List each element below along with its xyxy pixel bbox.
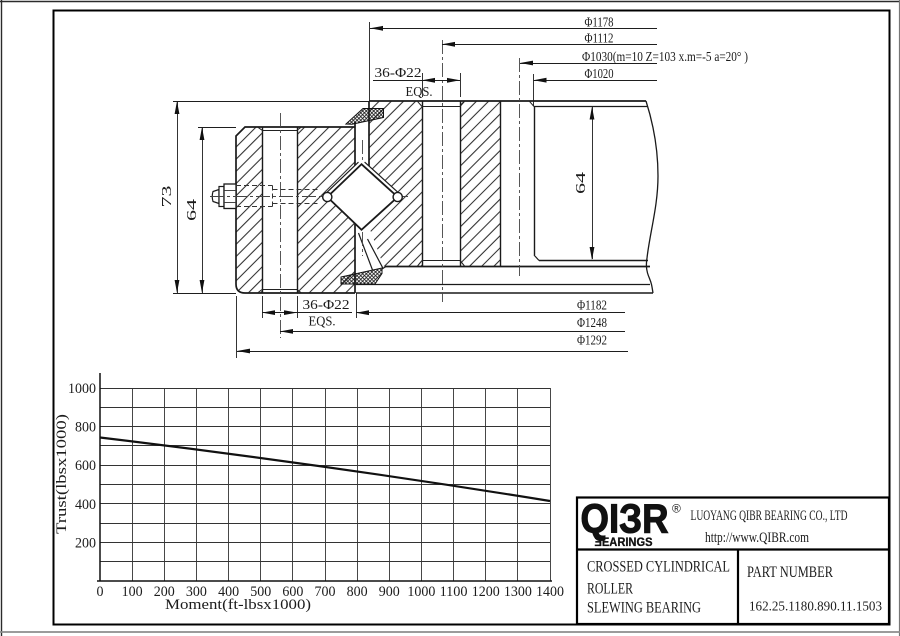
svg-text:Φ1112: Φ1112 xyxy=(585,32,614,47)
svg-text:64: 64 xyxy=(574,172,589,194)
svg-text:1000: 1000 xyxy=(407,584,435,600)
svg-text:800: 800 xyxy=(75,420,96,436)
svg-text:Moment(ft-lbsx1000): Moment(ft-lbsx1000) xyxy=(165,597,311,613)
svg-text:Φ1182: Φ1182 xyxy=(577,299,607,314)
svg-text:Φ1030(m=10 Z=103 x.m=-5 a=20°: Φ1030(m=10 Z=103 x.m=-5 a=20° ) xyxy=(582,50,748,65)
svg-text:36-Φ22: 36-Φ22 xyxy=(303,298,350,313)
svg-text:Trust(lbsx1000): Trust(lbsx1000) xyxy=(54,414,70,534)
svg-text:900: 900 xyxy=(379,584,400,600)
svg-text:EQS.: EQS. xyxy=(309,315,336,330)
svg-text:Φ1248: Φ1248 xyxy=(577,316,607,331)
svg-text:LUOYANG QIBR BEARING CO., LTD: LUOYANG QIBR BEARING CO., LTD xyxy=(691,508,848,524)
svg-text:CROSSED CYLINDRICAL: CROSSED CYLINDRICAL xyxy=(587,559,730,576)
svg-text:ƎEARINGS: ƎEARINGS xyxy=(595,537,653,549)
svg-text:800: 800 xyxy=(347,584,368,600)
svg-text:1300: 1300 xyxy=(504,584,532,600)
svg-text:0: 0 xyxy=(97,584,104,600)
svg-text:Φ1020: Φ1020 xyxy=(585,67,614,82)
svg-text:162.25.1180.890.11.1503: 162.25.1180.890.11.1503 xyxy=(749,599,882,614)
svg-text:EQS.: EQS. xyxy=(406,85,433,100)
svg-text:http://www.QIBR.com: http://www.QIBR.com xyxy=(705,530,809,546)
svg-text:1200: 1200 xyxy=(472,584,500,600)
svg-text:64: 64 xyxy=(185,199,200,221)
svg-text:700: 700 xyxy=(315,584,336,600)
svg-text:1100: 1100 xyxy=(440,584,468,600)
svg-text:Φ1178: Φ1178 xyxy=(585,16,614,31)
svg-text:1400: 1400 xyxy=(536,584,564,600)
svg-text:PART NUMBER: PART NUMBER xyxy=(747,564,833,581)
svg-text:200: 200 xyxy=(75,535,96,551)
svg-text:1000: 1000 xyxy=(68,381,96,397)
svg-text:SLEWING BEARING: SLEWING BEARING xyxy=(587,600,701,617)
svg-text:®: ® xyxy=(672,502,681,516)
svg-text:36-Φ22: 36-Φ22 xyxy=(375,66,422,81)
svg-text:600: 600 xyxy=(75,458,96,474)
svg-text:Φ1292: Φ1292 xyxy=(577,334,607,349)
svg-text:73: 73 xyxy=(160,186,175,208)
svg-text:400: 400 xyxy=(75,497,96,513)
svg-text:ROLLER: ROLLER xyxy=(587,581,633,598)
svg-text:100: 100 xyxy=(122,584,143,600)
svg-text:QIЗR: QIЗR xyxy=(581,496,669,542)
